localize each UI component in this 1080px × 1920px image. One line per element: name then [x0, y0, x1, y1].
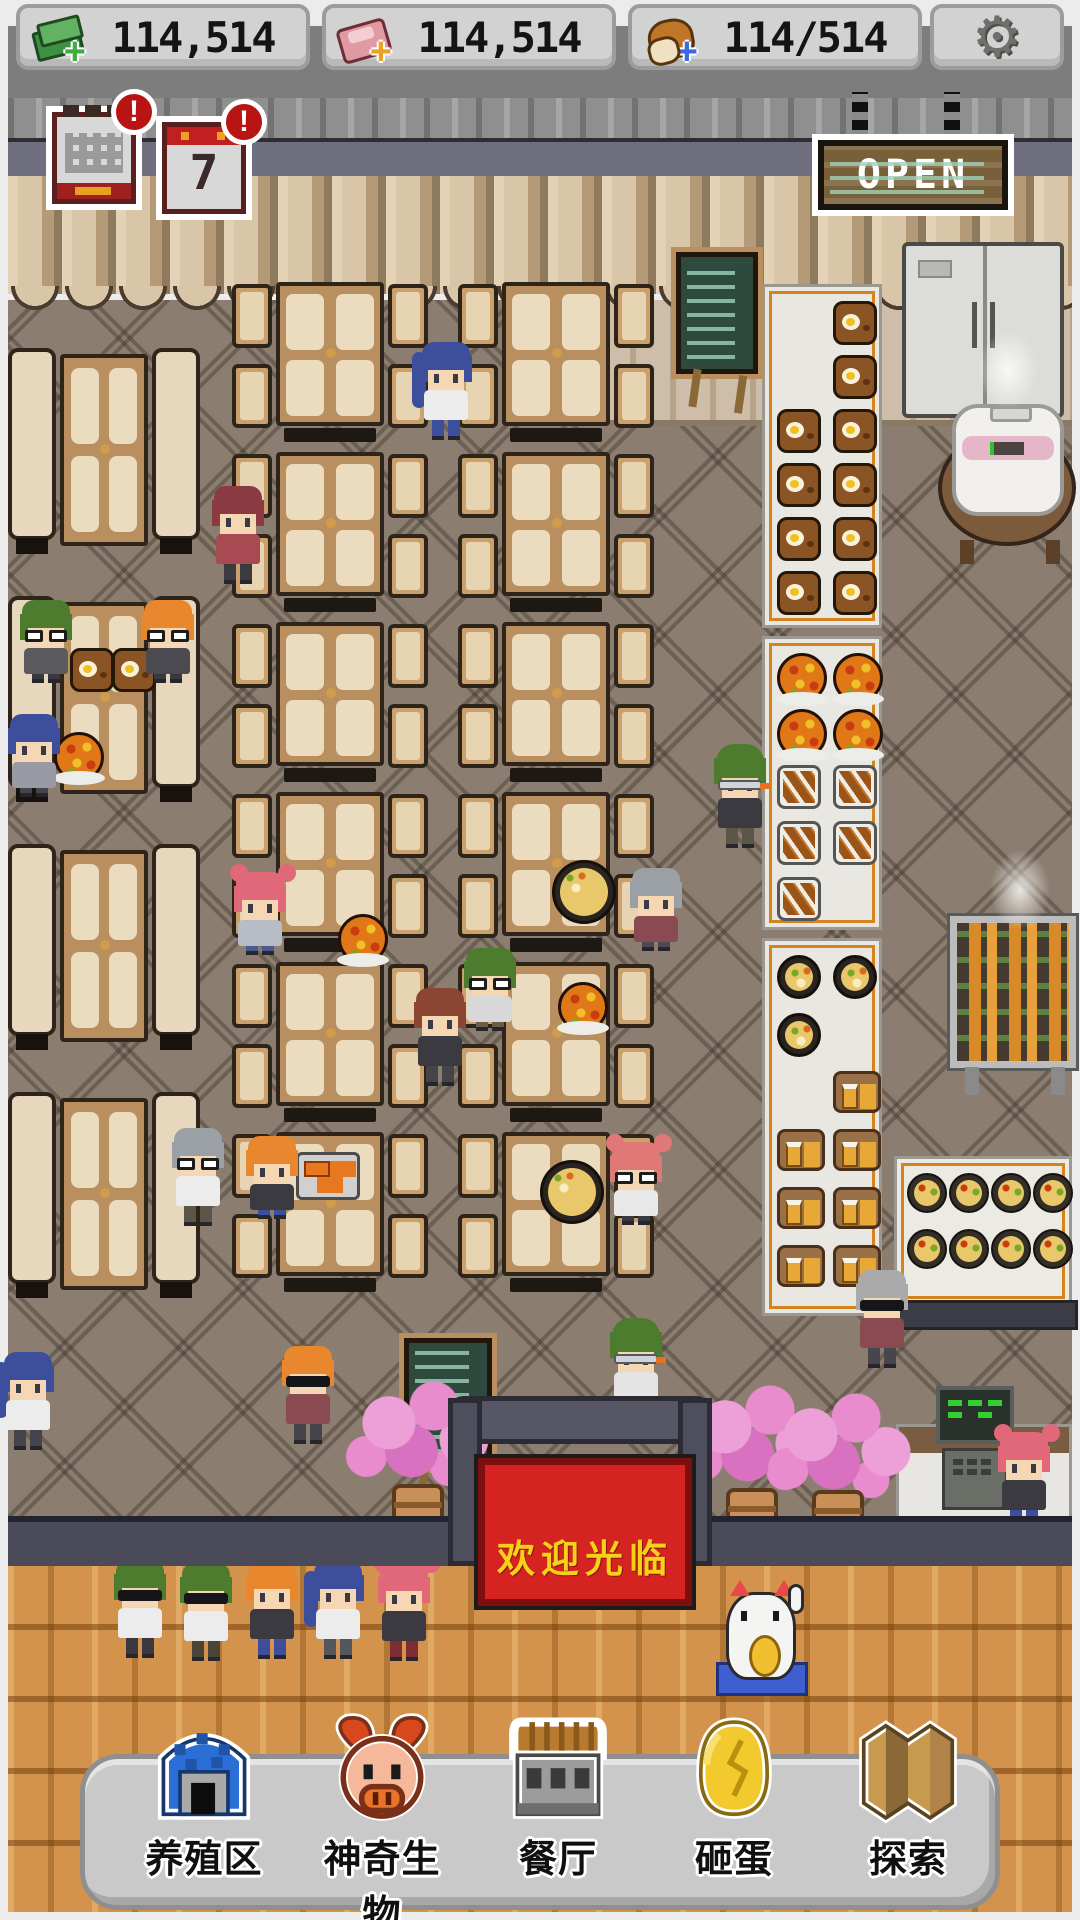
sushi-plate	[949, 1173, 989, 1213]
entrance-arch	[448, 1396, 712, 1444]
legs	[13, 1430, 43, 1450]
shirt	[468, 996, 512, 1022]
booth-bench	[8, 844, 56, 1036]
ranch-label: 养殖区	[129, 1828, 279, 1883]
glasses-icon	[176, 1158, 220, 1170]
food-curry	[833, 463, 877, 507]
food-rack-curry[interactable]	[762, 284, 882, 628]
calendar-footer	[57, 183, 131, 199]
cat-paw	[788, 1584, 804, 1614]
chair	[232, 1214, 272, 1278]
table-legs	[284, 768, 376, 782]
open-sign[interactable]: OPEN	[818, 92, 1008, 210]
food-curry	[833, 409, 877, 453]
customer	[628, 868, 684, 951]
tabletop	[276, 962, 384, 1106]
shirt	[238, 920, 282, 946]
legs	[31, 674, 61, 683]
booth-table	[8, 348, 200, 564]
table-legs	[510, 938, 602, 952]
food-curry	[777, 517, 821, 561]
entrance-pillar	[448, 1398, 482, 1566]
sushi-plate	[1033, 1173, 1073, 1213]
goggles-icon	[718, 780, 762, 790]
shirt	[718, 798, 762, 828]
gear-icon: ⚙	[971, 11, 1023, 63]
restaurant-icon	[499, 1711, 617, 1829]
fridge-vent	[918, 260, 952, 278]
food-pizza	[777, 709, 827, 759]
face	[254, 1589, 290, 1609]
legs	[431, 420, 461, 440]
bread-amount: 114/514	[702, 13, 908, 62]
bread-icon: +	[642, 11, 694, 63]
meat-resource-button[interactable]: + 114,514	[322, 4, 616, 70]
face	[220, 514, 256, 534]
daily-calendar-button[interactable]: 7 !	[162, 122, 246, 214]
notification-badge: !	[111, 89, 157, 135]
meat-amount: 114,514	[396, 13, 602, 62]
dining-table	[232, 622, 428, 780]
skewer-grill[interactable]	[950, 916, 1076, 1068]
chair	[232, 1044, 272, 1108]
food-skewer	[833, 765, 877, 809]
hair	[380, 1563, 428, 1591]
face	[242, 900, 278, 920]
hair	[612, 1318, 660, 1352]
shirt	[216, 534, 260, 564]
hair	[858, 1270, 906, 1298]
shirt	[146, 648, 190, 674]
golden-egg-icon	[675, 1711, 793, 1829]
chair	[614, 794, 654, 858]
sushi-plate	[991, 1173, 1031, 1213]
customer	[712, 744, 768, 848]
settings-button[interactable]: ⚙	[930, 4, 1064, 70]
legs	[223, 564, 253, 584]
customer	[210, 486, 266, 584]
chair	[388, 874, 428, 938]
food-curry	[833, 301, 877, 345]
booth-tabletop	[60, 850, 148, 1042]
chair	[458, 1214, 498, 1278]
hair	[1000, 1432, 1048, 1460]
customer	[462, 948, 518, 1031]
plus-icon: +	[64, 33, 86, 71]
chair	[388, 1134, 428, 1198]
glasses-icon	[146, 630, 190, 642]
food-beer	[777, 1187, 825, 1229]
food-pizza	[777, 653, 827, 703]
queue-customer	[244, 1561, 300, 1659]
legs	[621, 1216, 651, 1225]
menu-chalkboard[interactable]	[676, 252, 758, 374]
shirt	[184, 1611, 228, 1641]
face	[638, 896, 674, 916]
legs	[641, 942, 671, 951]
chair	[458, 454, 498, 518]
sushi-plate	[907, 1229, 947, 1269]
hair	[144, 600, 192, 628]
booth-bench	[152, 348, 200, 540]
face	[10, 1380, 46, 1400]
shirt	[316, 1609, 360, 1639]
map-icon	[849, 1711, 967, 1829]
dining-table	[458, 282, 654, 440]
customer	[418, 342, 474, 440]
chair	[614, 1044, 654, 1108]
shirt	[250, 1609, 294, 1639]
sushi-counter[interactable]	[894, 1156, 1072, 1306]
table-legs	[284, 1278, 376, 1292]
smash-egg-label: 砸蛋	[659, 1828, 809, 1883]
sunglasses-icon	[286, 1376, 330, 1387]
food-curry	[833, 355, 877, 399]
table-legs	[284, 1108, 376, 1122]
chair	[388, 624, 428, 688]
food-rack-rice-beer[interactable]	[762, 938, 882, 1316]
sushi-plate	[907, 1173, 947, 1213]
shirt	[614, 1190, 658, 1216]
cat-ear	[730, 1580, 750, 1596]
face	[16, 742, 52, 762]
chair	[458, 704, 498, 768]
chair	[614, 284, 654, 348]
chair	[388, 454, 428, 518]
customer	[280, 1346, 336, 1444]
legs	[257, 1210, 287, 1219]
food-skewer	[777, 877, 821, 921]
queue-customer	[310, 1561, 366, 1659]
dining-table	[232, 282, 428, 440]
food-rice-lg	[540, 1160, 604, 1224]
queue-customer	[178, 1563, 234, 1661]
legs	[725, 828, 755, 848]
creatures-label: 神奇生物	[307, 1828, 457, 1920]
customer	[232, 872, 288, 955]
face	[428, 370, 464, 390]
customer	[140, 600, 196, 683]
food-bento	[296, 1152, 360, 1200]
shirt	[6, 1400, 50, 1430]
barn-icon	[145, 1711, 263, 1829]
table-legs	[284, 598, 376, 612]
shirt	[286, 1394, 330, 1424]
sushi-plate	[949, 1229, 989, 1269]
food-skewer	[833, 821, 877, 865]
chair	[614, 364, 654, 428]
plus-icon: +	[370, 33, 392, 71]
legs	[125, 1638, 155, 1658]
booth-table	[8, 844, 200, 1060]
booth-tabletop	[60, 354, 148, 546]
chair	[614, 704, 654, 768]
food-curry	[833, 571, 877, 615]
dining-table	[458, 792, 654, 950]
customer	[18, 600, 74, 683]
restaurant-button[interactable]: 餐厅	[483, 1711, 633, 1883]
face	[254, 1164, 290, 1184]
chair	[458, 874, 498, 938]
food-beer	[833, 1129, 881, 1171]
chair	[458, 1134, 498, 1198]
shirt	[1002, 1480, 1046, 1510]
shirt	[418, 1036, 462, 1066]
welcome-banner-text: 欢迎光临	[497, 1528, 673, 1583]
food-skewer	[777, 765, 821, 809]
food-rice-lg	[552, 860, 616, 924]
cash-amount: 114,514	[90, 13, 296, 62]
food-rice	[777, 1013, 821, 1057]
tabletop	[502, 282, 610, 426]
meat-icon: +	[336, 11, 388, 63]
chair	[388, 1214, 428, 1278]
rice-cooker[interactable]	[952, 404, 1064, 516]
hair	[4, 1352, 52, 1380]
hair	[174, 1128, 222, 1156]
shirt	[118, 1608, 162, 1638]
table-legs	[510, 1108, 602, 1122]
chair	[388, 704, 428, 768]
sunglasses-icon	[860, 1300, 904, 1311]
customer	[170, 1128, 226, 1226]
dining-table	[458, 622, 654, 780]
ranch-button[interactable]: 养殖区	[129, 1711, 279, 1883]
food-curry	[833, 517, 877, 561]
hair	[10, 714, 58, 742]
chair	[458, 794, 498, 858]
table-legs	[284, 428, 376, 442]
food-beer	[833, 1187, 881, 1229]
customer	[412, 988, 468, 1086]
tabletop	[276, 622, 384, 766]
hair	[632, 868, 680, 896]
dining-table	[458, 452, 654, 610]
tabletop	[276, 282, 384, 426]
chair	[614, 624, 654, 688]
food-beer	[777, 1245, 825, 1287]
face	[386, 1591, 422, 1611]
lucky-cat[interactable]	[724, 1578, 800, 1690]
chair	[458, 534, 498, 598]
creatures-button[interactable]: 神奇生物	[307, 1711, 457, 1920]
pig-icon	[323, 1711, 441, 1829]
steam	[990, 850, 1050, 930]
food-curry	[777, 571, 821, 615]
hair	[182, 1563, 230, 1591]
face	[422, 1016, 458, 1036]
food-curry	[777, 463, 821, 507]
cash-icon: +	[30, 11, 82, 63]
booth-bench	[152, 844, 200, 1036]
bread-resource-button[interactable]: + 114/514	[628, 4, 922, 70]
chair	[614, 964, 654, 1028]
legs	[867, 1348, 897, 1368]
legs	[475, 1022, 505, 1031]
hair	[22, 600, 70, 628]
legs	[293, 1424, 323, 1444]
hair	[466, 948, 514, 976]
booth-bench	[8, 1092, 56, 1284]
legs	[153, 674, 183, 683]
hair	[422, 342, 470, 370]
food-skewer	[777, 821, 821, 865]
game-screen: 欢迎光临 + 114,514 + 114,514 + 114/514 ⚙ ! 7…	[0, 0, 1080, 1920]
explore-label: 探索	[833, 1828, 983, 1883]
explore-button[interactable]: 探索	[833, 1711, 983, 1883]
booth-tabletop	[60, 1098, 148, 1290]
customer	[854, 1270, 910, 1368]
hair	[612, 1142, 660, 1170]
hair	[214, 486, 262, 514]
chair	[458, 284, 498, 348]
face	[320, 1589, 356, 1609]
glasses-icon	[468, 978, 512, 990]
food-rack-pizza-skewer[interactable]	[762, 636, 882, 930]
customer	[608, 1142, 664, 1225]
welcome-banner: 欢迎光临	[478, 1458, 692, 1606]
sushi-plate	[1033, 1229, 1073, 1269]
hair	[248, 1136, 296, 1164]
queue-customer	[112, 1560, 168, 1658]
shirt	[176, 1176, 220, 1206]
legs	[245, 946, 275, 955]
tabletop	[502, 452, 610, 596]
food-rice	[777, 955, 821, 999]
shirt	[424, 390, 468, 420]
hair	[716, 744, 764, 778]
table-legs	[510, 1278, 602, 1292]
chair	[232, 964, 272, 1028]
monthly-calendar-button[interactable]: !	[52, 112, 136, 204]
food-pizza	[338, 914, 388, 964]
chair	[614, 454, 654, 518]
legs	[19, 788, 49, 797]
customer	[6, 714, 62, 797]
chair	[232, 704, 272, 768]
food-curry	[70, 648, 114, 692]
table-legs	[510, 598, 602, 612]
chair	[458, 624, 498, 688]
chair	[388, 794, 428, 858]
goggles-icon	[614, 1354, 658, 1364]
legs	[425, 1066, 455, 1086]
food-curry	[777, 409, 821, 453]
tabletop	[276, 452, 384, 596]
booth-bench	[8, 348, 56, 540]
hair	[236, 872, 284, 900]
face	[1006, 1460, 1042, 1480]
glasses-icon	[24, 630, 68, 642]
chair	[614, 534, 654, 598]
notification-badge: !	[221, 99, 267, 145]
shirt	[250, 1184, 294, 1210]
shirt	[634, 916, 678, 942]
smash-egg-button[interactable]: 砸蛋	[659, 1711, 809, 1883]
food-pizza	[833, 709, 883, 759]
plus-icon: +	[676, 33, 698, 71]
food-pizza	[833, 653, 883, 703]
chair	[232, 284, 272, 348]
chair	[232, 624, 272, 688]
open-sign-board: OPEN	[818, 140, 1008, 210]
calendar-grid	[65, 133, 123, 173]
table-legs	[510, 768, 602, 782]
food-rice	[833, 955, 877, 999]
customer	[244, 1136, 300, 1219]
food-beer	[777, 1129, 825, 1171]
customer	[0, 1352, 56, 1450]
chair	[232, 794, 272, 858]
shirt	[382, 1611, 426, 1641]
table-legs	[510, 428, 602, 442]
queue-customer	[376, 1563, 432, 1661]
chair	[388, 284, 428, 348]
cash-resource-button[interactable]: + 114,514	[16, 4, 310, 70]
chair	[232, 364, 272, 428]
steam	[978, 330, 1038, 410]
tabletop	[502, 622, 610, 766]
food-pizza	[558, 982, 608, 1032]
food-beer	[833, 1071, 881, 1113]
bottom-toolbar: 养殖区 神奇生物	[80, 1754, 1000, 1910]
restaurant-label: 餐厅	[483, 1828, 633, 1883]
shirt	[24, 648, 68, 674]
calendar-day: 7	[167, 145, 241, 201]
glasses-icon	[614, 1172, 658, 1184]
sunglasses-icon	[118, 1590, 162, 1601]
shirt	[860, 1318, 904, 1348]
legs	[183, 1206, 213, 1226]
sunglasses-icon	[184, 1593, 228, 1604]
legs	[323, 1639, 353, 1659]
legs	[389, 1641, 419, 1661]
hair	[284, 1346, 332, 1374]
hair	[416, 988, 464, 1016]
sushi-plate	[991, 1229, 1031, 1269]
legs	[191, 1641, 221, 1661]
dining-table	[232, 962, 428, 1120]
shirt	[12, 762, 56, 788]
lucky-cat-body	[726, 1592, 796, 1680]
legs	[257, 1639, 287, 1659]
chair	[388, 534, 428, 598]
